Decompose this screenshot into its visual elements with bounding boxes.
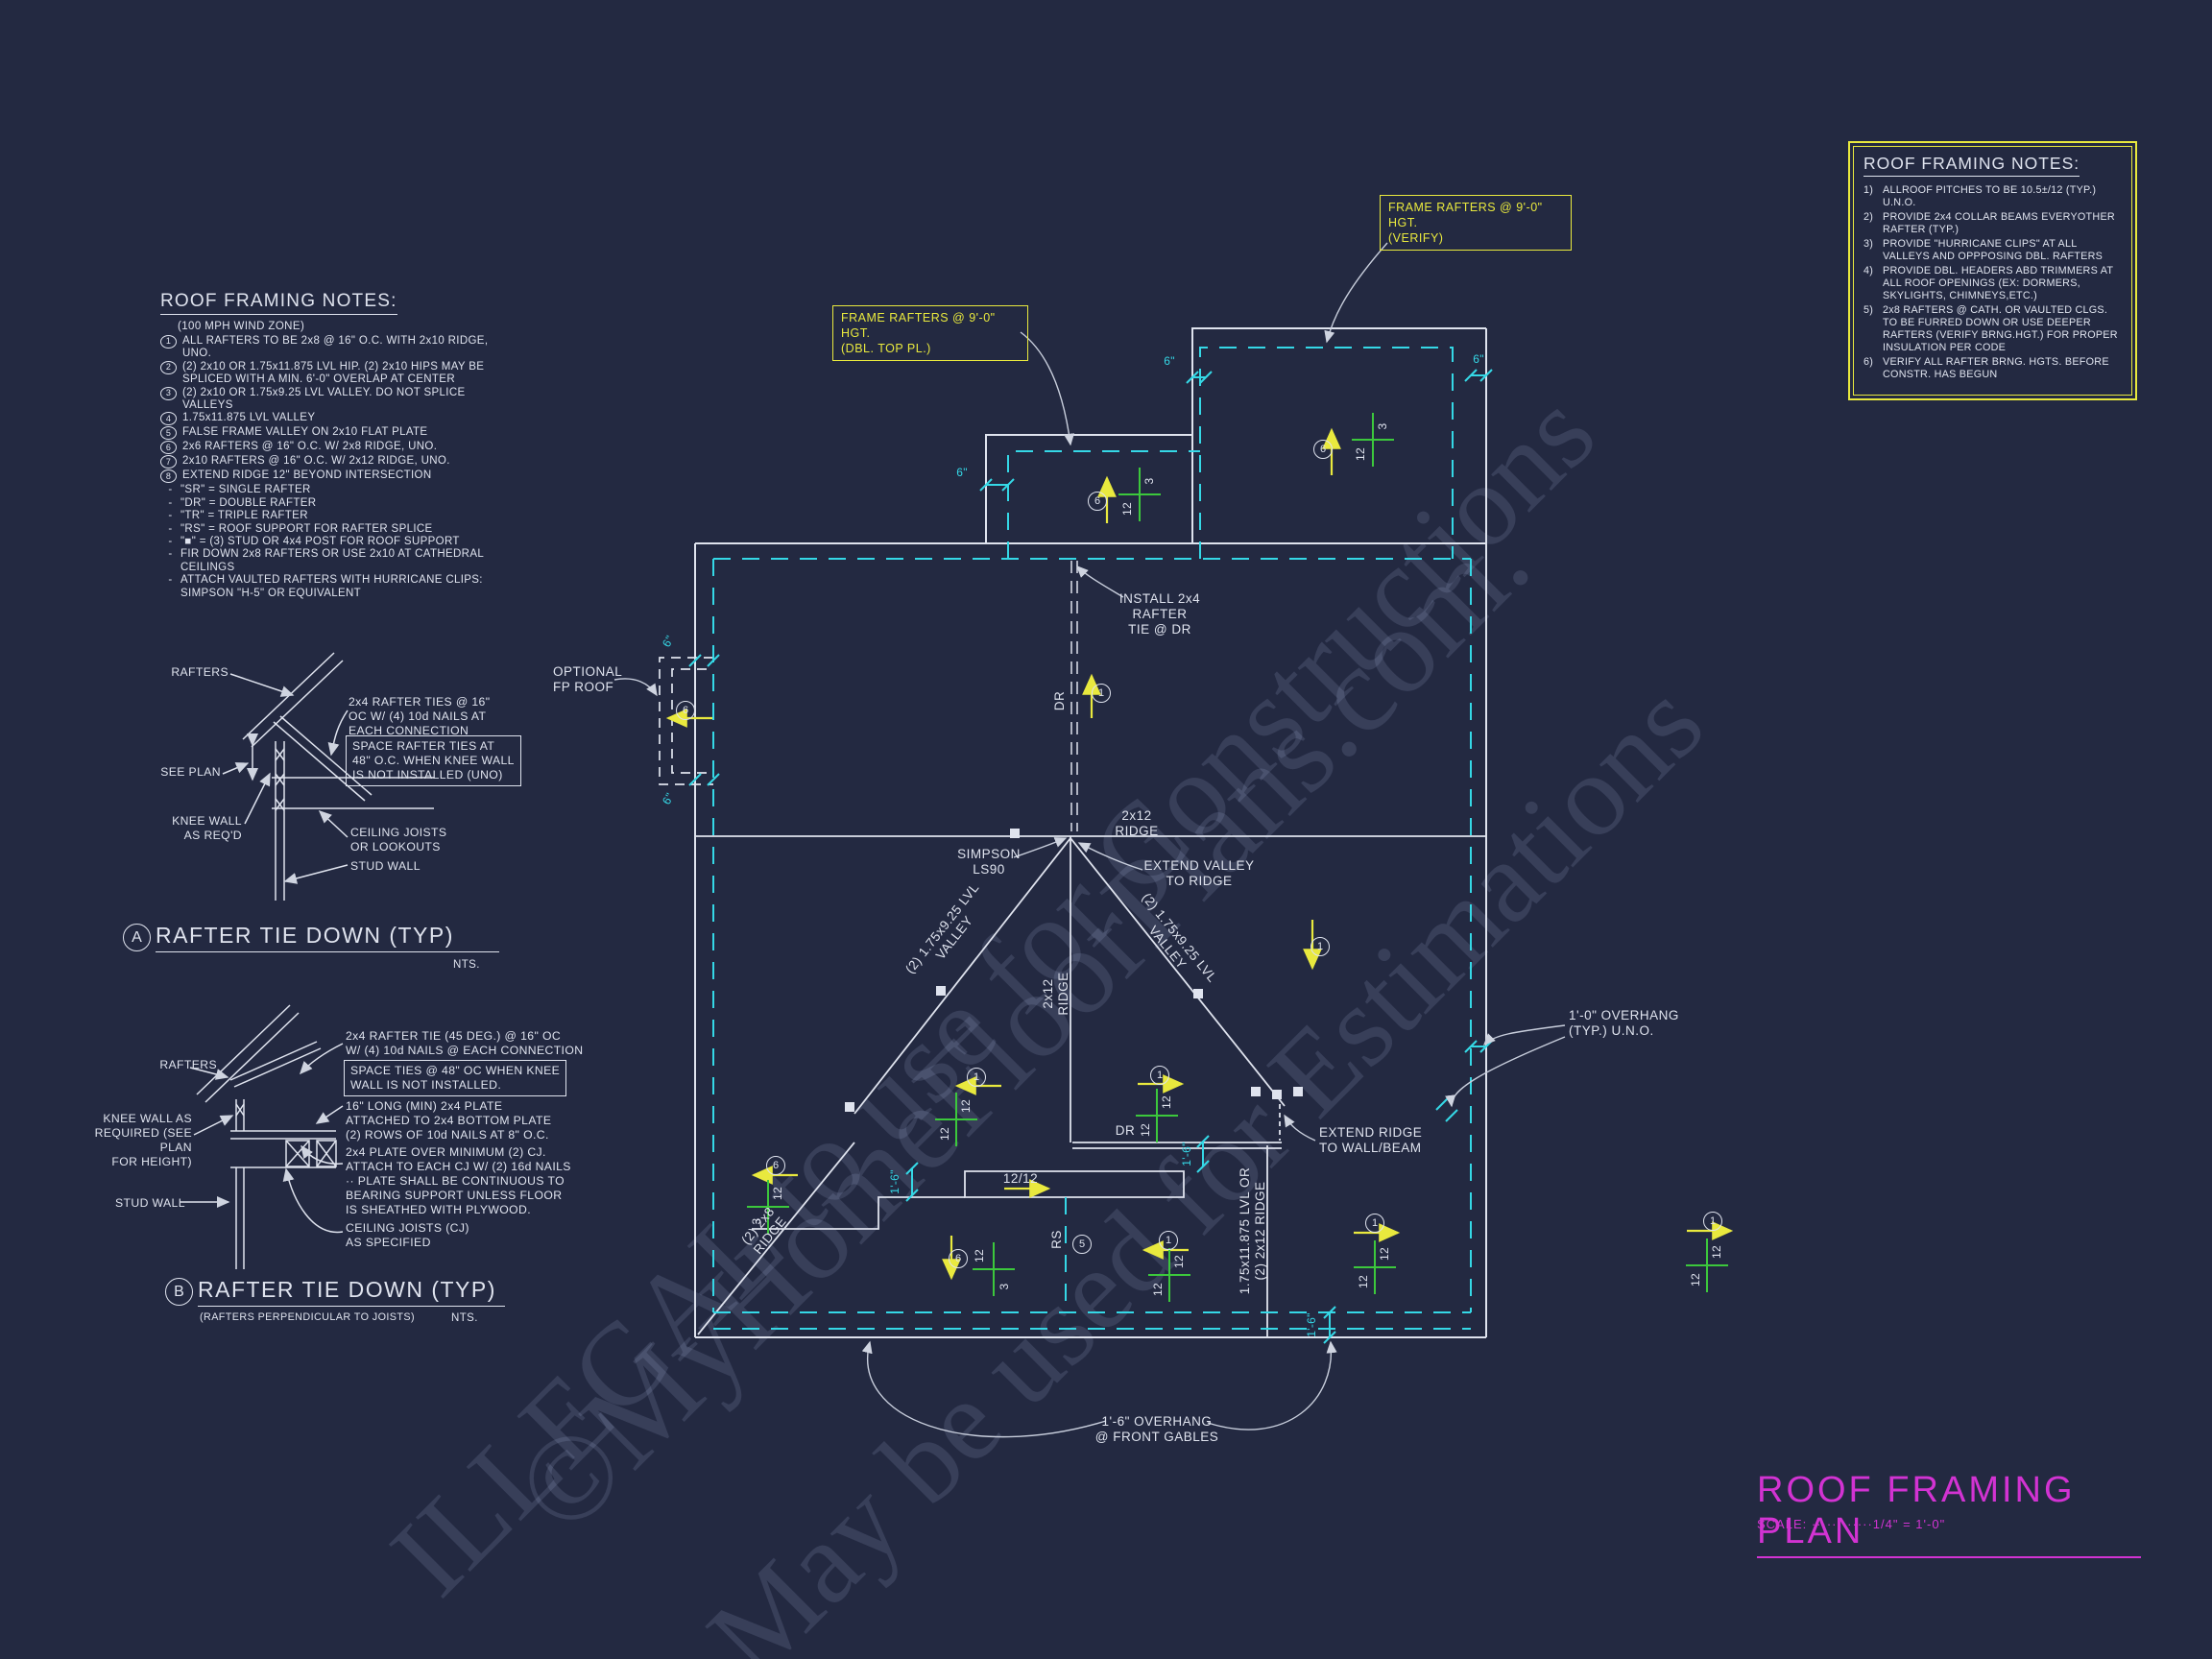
right-roof-framing-notes-box: ROOF FRAMING NOTES: 1)ALLROOF PITCHES TO… [1848,141,2137,400]
callout-frame-rafters-dbl: FRAME RAFTERS @ 9'-0" HGT. (DBL. TOP PL.… [832,305,1028,361]
note-item: 1ALL RAFTERS TO BE 2x8 @ 16" O.C. WITH 2… [160,335,564,361]
detail-b-marker: B [165,1278,193,1306]
roof-framing-plan-sheet: ILLEGAL to use for Constructions ©MyHome… [0,0,2212,1659]
note-item: -"RS" = ROOF SUPPORT FOR RAFTER SPLICE [160,523,564,536]
plan-label-extend-valley: EXTEND VALLEY TO RIDGE [1143,858,1254,889]
dim-6in: 6" [1473,352,1484,366]
dim-1-6: 1'-6" [1305,1312,1318,1336]
pitch-label: 12 [1172,1255,1186,1268]
pitch-label: 12 [771,1187,784,1200]
pitch-label: 12 [1120,502,1134,516]
detail-b-stud-label: STUD WALL [115,1196,185,1211]
left-roof-framing-notes: ROOF FRAMING NOTES: (100 MPH WIND ZONE) … [160,291,564,600]
pitch-label: 3 [998,1284,1011,1290]
plan-label-dr: DR [1116,1123,1136,1139]
note-number: 6) [1863,356,1883,381]
detail-a-scale: NTS. [453,958,480,972]
detail-b-title: RAFTER TIE DOWN (TYP) [198,1277,505,1307]
note-marker-6: 6 [676,701,695,720]
note-text: 2x10 RAFTERS @ 16" O.C. W/ 2x12 RIDGE, U… [182,455,499,469]
note-number: 6 [160,441,177,454]
note-item: 72x10 RAFTERS @ 16" O.C. W/ 2x12 RIDGE, … [160,455,564,469]
dim-6in: 6" [956,466,968,479]
plan-label-install-tie: INSTALL 2x4 RAFTER TIE @ DR [1119,591,1200,637]
note-text: FALSE FRAME VALLEY ON 2x10 FLAT PLATE [182,426,499,441]
plan-label-lvl-ridge: 1.75x11.875 LVL OR (2) 2x12 RIDGE [1238,1167,1268,1295]
note-item: 62x6 RAFTERS @ 16" O.C. W/ 2x8 RIDGE, UN… [160,441,564,455]
note-number: 1) [1863,184,1883,209]
note-item: 3)PROVIDE "HURRICANE CLIPS" AT ALL VALLE… [1863,238,2122,263]
left-notes-title: ROOF FRAMING NOTES: [160,291,397,315]
detail-b-rafters-label: RAFTERS [132,1058,217,1072]
note-number: 3) [1863,238,1883,263]
detail-b-tie-label: 2x4 RAFTER TIE (45 DEG.) @ 16" OC W/ (4)… [346,1029,583,1058]
note-marker-6: 6 [1088,492,1107,511]
note-text: FIR DOWN 2x8 RAFTERS OR USE 2x10 AT CATH… [180,548,497,574]
note-text: (2) 2x10 OR 1.75x9.25 LVL VALLEY. DO NOT… [182,387,499,413]
plan-label-ridge-2x12: 2x12 RIDGE [1115,808,1158,839]
pitch-label: 12 [973,1249,986,1262]
note-marker-1: 1 [1703,1212,1722,1231]
note-dash: - [160,536,180,548]
note-text: EXTEND RIDGE 12" BEYOND INTERSECTION [182,469,499,484]
note-marker-1: 1 [1159,1231,1178,1250]
dim-1-6: 1'-6" [1180,1142,1193,1166]
detail-b-plate24-label: 2x4 PLATE OVER MINIMUM (2) CJ. ATTACH TO… [346,1145,571,1216]
note-text: "TR" = TRIPLE RAFTER [180,510,497,522]
callout-line: (DBL. TOP PL.) [841,341,1020,356]
note-number: 3 [160,387,177,400]
detail-a-ceiling-label: CEILING JOISTS OR LOOKOUTS [350,826,446,854]
plan-label-optional-fp: OPTIONAL FP ROOF [553,664,622,695]
pitch-label: 12 [1357,1275,1370,1288]
plan-label-dr-vert: DR [1052,691,1068,711]
note-item: 3(2) 2x10 OR 1.75x9.25 LVL VALLEY. DO NO… [160,387,564,413]
note-marker-6: 6 [766,1156,785,1175]
detail-b-knee-wall-label: KNEE WALL AS REQUIRED (SEE PLAN FOR HEIG… [88,1112,192,1169]
roof-outline [695,328,1486,1337]
leader-lines [614,243,1565,1437]
note-marker-5: 5 [1072,1235,1092,1254]
note-item: 5FALSE FRAME VALLEY ON 2x10 FLAT PLATE [160,426,564,441]
detail-b-cj-label: CEILING JOISTS (CJ) AS SPECIFIED [346,1221,469,1250]
dim-1-6: 1'-6" [888,1169,902,1193]
note-item: -ATTACH VAULTED RAFTERS WITH HURRICANE C… [160,574,564,600]
plan-label-overhang-1-0: 1'-0" OVERHANG (TYP.) U.N.O. [1569,1008,1679,1039]
plan-label-ridge-2x12-vert: 2x12 RIDGE [1041,972,1071,1015]
pitch-label: 12 [1710,1245,1723,1259]
note-dash: - [160,548,180,574]
sheet-scale: SCALE: ············1/4" = 1'-0" [1757,1517,1945,1531]
right-notes-title: ROOF FRAMING NOTES: [1863,154,2080,177]
note-item: 2)PROVIDE 2x4 COLLAR BEAMS EVERYOTHER RA… [1863,211,2122,236]
note-number: 2) [1863,211,1883,236]
pitch-label: 12 [1139,1123,1152,1137]
detail-a-title: RAFTER TIE DOWN (TYP) [156,923,499,952]
dim-6in: 6" [1164,354,1175,368]
note-item: 4)PROVIDE DBL. HEADERS ABD TRIMMERS AT A… [1863,265,2122,302]
note-text: "RS" = ROOF SUPPORT FOR RAFTER SPLICE [180,523,497,536]
pitch-label: 12 [959,1099,973,1113]
detail-b-scale: NTS. [451,1311,478,1325]
sheet-title: ROOF FRAMING PLAN [1757,1470,2141,1558]
note-marker-1: 1 [1150,1066,1169,1085]
callout-line: FRAME RAFTERS @ 9'-0" HGT. [841,310,1020,341]
detail-b-drawing [180,1005,343,1269]
note-marker-1: 1 [1310,937,1330,956]
note-item: -FIR DOWN 2x8 RAFTERS OR USE 2x10 AT CAT… [160,548,564,574]
detail-a-marker: A [123,924,151,951]
note-marker-6: 6 [1313,440,1333,459]
note-text: "DR" = DOUBLE RAFTER [180,497,497,510]
detail-b-spacing-note: SPACE TIES @ 48" OC WHEN KNEE WALL IS NO… [344,1060,566,1096]
note-item: 6)VERIFY ALL RAFTER BRNG. HGTS. BEFORE C… [1863,356,2122,381]
pitch-label: 12 [1151,1283,1165,1296]
note-item: 8EXTEND RIDGE 12" BEYOND INTERSECTION [160,469,564,484]
note-text: VERIFY ALL RAFTER BRNG. HGTS. BEFORE CON… [1883,356,2122,381]
callout-frame-rafters-verify: FRAME RAFTERS @ 9'-0" HGT. (VERIFY) [1380,195,1572,251]
note-text: PROVIDE 2x4 COLLAR BEAMS EVERYOTHER RAFT… [1883,211,2122,236]
note-marker-1: 1 [967,1068,986,1087]
note-item: -"TR" = TRIPLE RAFTER [160,510,564,522]
plan-label-extend-ridge: EXTEND RIDGE TO WALL/BEAM [1319,1125,1422,1156]
pitch-label: 3 [1142,478,1156,485]
note-text: ALLROOF PITCHES TO BE 10.5±/12 (TYP.) U.… [1883,184,2122,209]
detail-a-stud-label: STUD WALL [350,859,421,874]
plan-label-12-12: 12/12 [1003,1171,1038,1187]
detail-a-tie-label: 2x4 RAFTER TIES @ 16" OC W/ (4) 10d NAIL… [349,695,490,738]
note-number: 5) [1863,304,1883,354]
note-text: "SR" = SINGLE RAFTER [180,484,497,496]
note-dash: - [160,497,180,510]
callout-line: (VERIFY) [1388,230,1563,246]
note-item: -"■" = (3) STUD OR 4x4 POST FOR ROOF SUP… [160,536,564,548]
note-number: 5 [160,426,177,440]
note-number: 4) [1863,265,1883,302]
note-text: 1.75x11.875 LVL VALLEY [182,412,499,426]
note-number: 7 [160,455,177,469]
note-number: 4 [160,412,177,425]
pitch-label: 12 [1378,1247,1391,1261]
note-item: 1)ALLROOF PITCHES TO BE 10.5±/12 (TYP.) … [1863,184,2122,209]
detail-b-subtitle: (RAFTERS PERPENDICULAR TO JOISTS) [200,1311,415,1324]
note-item: 2(2) 2x10 OR 1.75x11.875 LVL HIP. (2) 2x… [160,361,564,387]
note-text: PROVIDE DBL. HEADERS ABD TRIMMERS AT ALL… [1883,265,2122,302]
note-dash: - [160,574,180,600]
detail-b-plate16-label: 16" LONG (MIN) 2x4 PLATE ATTACHED TO 2x4… [346,1099,551,1142]
note-text: "■" = (3) STUD OR 4x4 POST FOR ROOF SUPP… [180,536,497,548]
detail-a-rafters-label: RAFTERS [144,665,228,680]
detail-a-knee-wall-label: KNEE WALL AS REQ'D [163,814,242,843]
plan-label-simpson-ls90: SIMPSON LS90 [957,847,1021,878]
pitch-label: 12 [1689,1273,1702,1286]
note-text: 2x8 RAFTERS @ CATH. OR VAULTED CLGS. TO … [1883,304,2122,354]
pitch-label: 12 [1160,1095,1173,1109]
note-number: 1 [160,335,177,349]
pitch-label: 12 [938,1127,951,1141]
note-dash: - [160,510,180,522]
detail-a-spacing-note: SPACE RAFTER TIES AT 48" O.C. WHEN KNEE … [346,735,521,786]
note-number: 2 [160,361,177,374]
optional-fp-roof-outline [660,658,713,784]
note-item: -"SR" = SINGLE RAFTER [160,484,564,496]
note-marker-1: 1 [1365,1214,1384,1233]
note-item: -"DR" = DOUBLE RAFTER [160,497,564,510]
note-dash: - [160,484,180,496]
note-dash: - [160,523,180,536]
right-notes-inner: ROOF FRAMING NOTES: 1)ALLROOF PITCHES TO… [1853,146,2132,396]
detail-a-see-plan-label: SEE PLAN [154,765,221,780]
pitch-label: 3 [750,1218,763,1225]
note-marker-6: 6 [949,1249,968,1268]
note-text: ALL RAFTERS TO BE 2x8 @ 16" O.C. WITH 2x… [182,335,499,361]
pitch-label: 12 [1354,447,1367,461]
callout-line: FRAME RAFTERS @ 9'-0" HGT. [1388,200,1563,230]
plan-label-rs: RS [1049,1230,1065,1249]
note-item: 41.75x11.875 LVL VALLEY [160,412,564,426]
note-number: 8 [160,469,177,483]
note-marker-1: 1 [1092,684,1111,703]
note-text: (2) 2x10 OR 1.75x11.875 LVL HIP. (2) 2x1… [182,361,499,387]
note-item: 5)2x8 RAFTERS @ CATH. OR VAULTED CLGS. T… [1863,304,2122,354]
left-notes-subtitle: (100 MPH WIND ZONE) [178,321,564,332]
pitch-label: 3 [1376,423,1389,430]
note-text: PROVIDE "HURRICANE CLIPS" AT ALL VALLEYS… [1883,238,2122,263]
note-text: 2x6 RAFTERS @ 16" O.C. W/ 2x8 RIDGE, UNO… [182,441,499,455]
note-text: ATTACH VAULTED RAFTERS WITH HURRICANE CL… [180,574,497,600]
plan-label-overhang-1-6: 1'-6" OVERHANG @ FRONT GABLES [1095,1414,1218,1445]
